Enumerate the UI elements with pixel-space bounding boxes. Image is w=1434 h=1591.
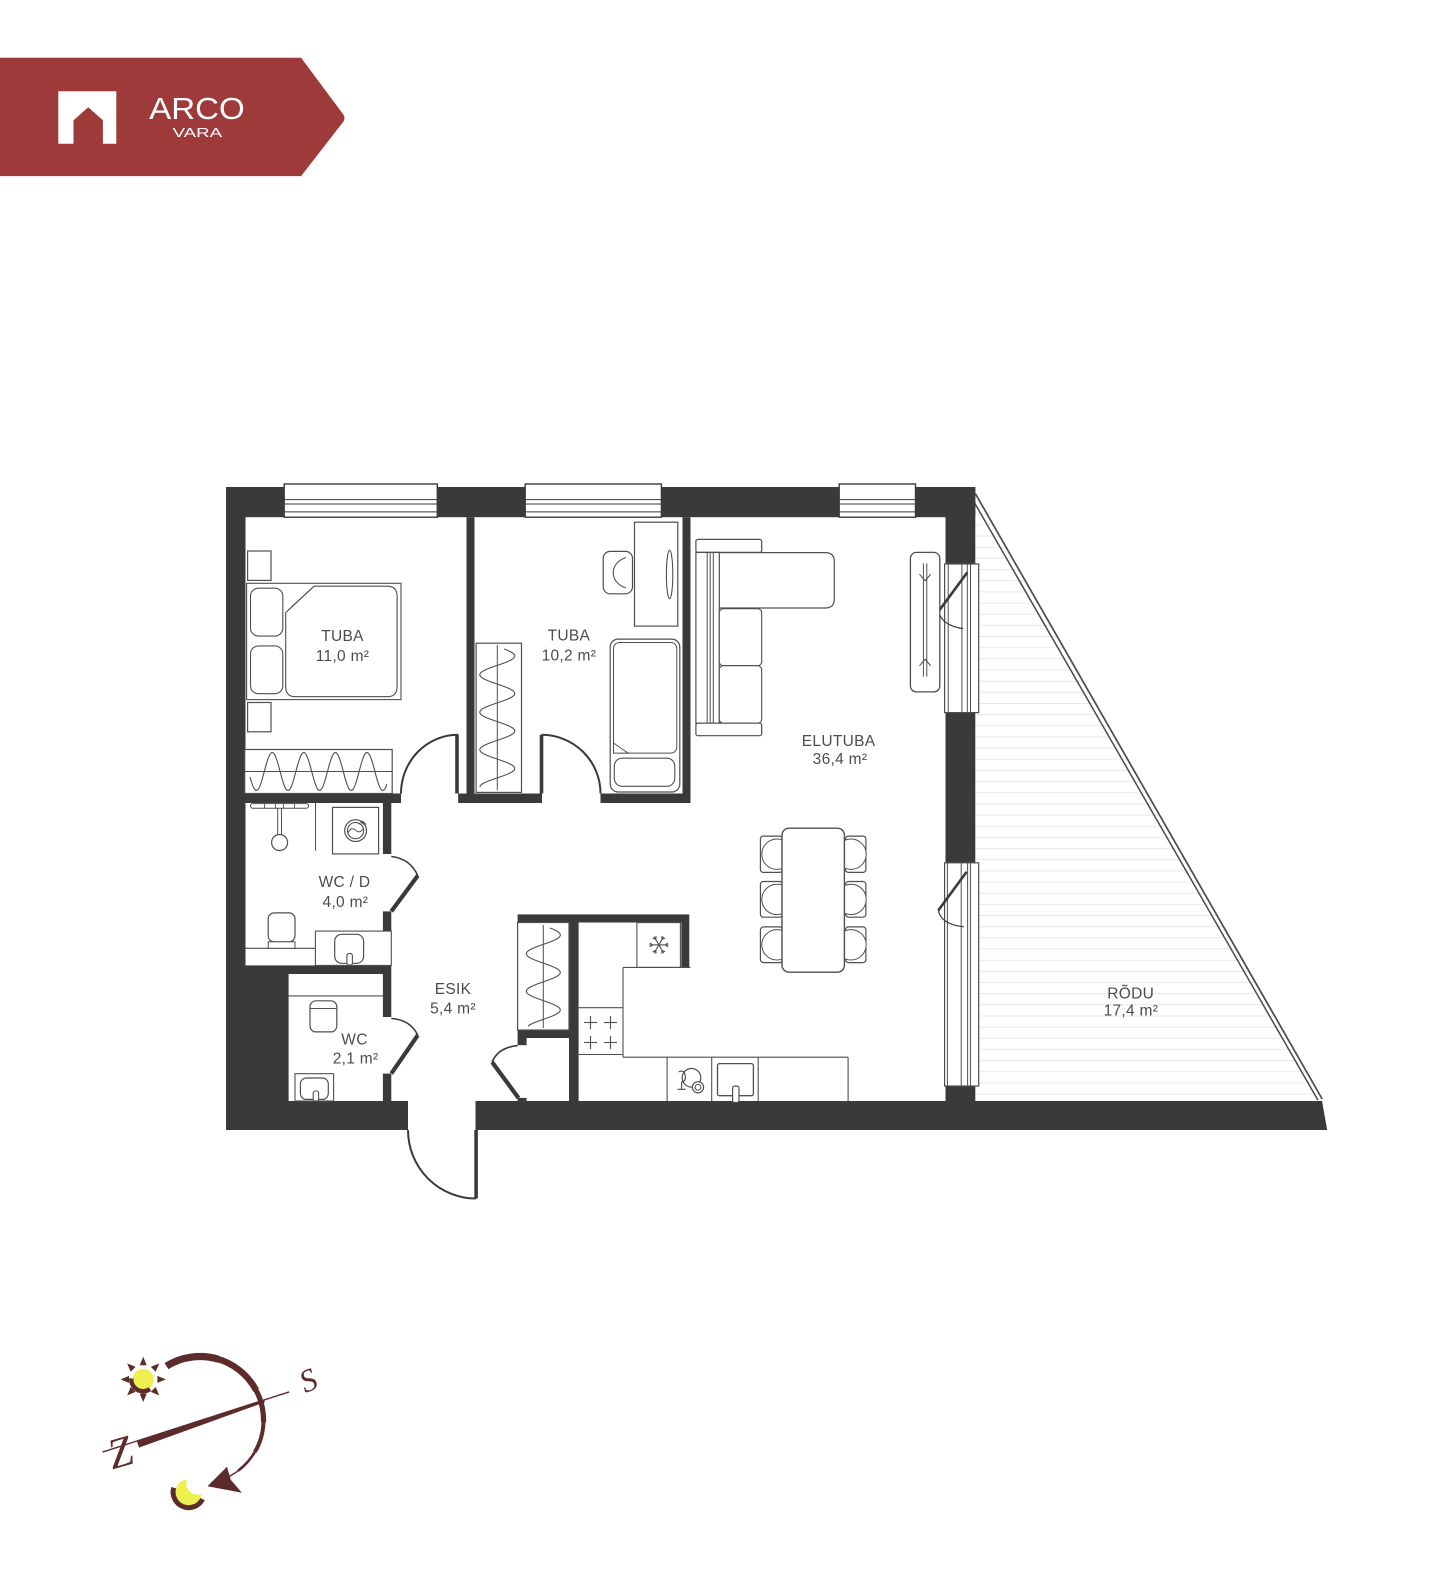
svg-text:4,0 m²: 4,0 m² bbox=[323, 894, 369, 911]
svg-text:RÕDU: RÕDU bbox=[1107, 986, 1154, 1003]
svg-text:17,4 m²: 17,4 m² bbox=[1104, 1003, 1159, 1020]
svg-text:ESIK: ESIK bbox=[435, 981, 472, 998]
svg-text:2,1 m²: 2,1 m² bbox=[333, 1051, 379, 1068]
svg-text:TUBA: TUBA bbox=[321, 628, 364, 645]
svg-text:36,4 m²: 36,4 m² bbox=[813, 751, 868, 768]
svg-text:ARCO: ARCO bbox=[149, 91, 245, 126]
svg-text:WC / D: WC / D bbox=[319, 874, 371, 891]
svg-text:5,4 m²: 5,4 m² bbox=[430, 1001, 476, 1018]
svg-text:TUBA: TUBA bbox=[548, 628, 591, 645]
svg-text:VARA: VARA bbox=[173, 126, 223, 140]
svg-text:ELUTUBA: ELUTUBA bbox=[802, 733, 876, 750]
svg-text:10,2 m²: 10,2 m² bbox=[542, 648, 597, 665]
svg-text:WC: WC bbox=[341, 1032, 367, 1049]
svg-text:11,0 m²: 11,0 m² bbox=[316, 648, 370, 665]
